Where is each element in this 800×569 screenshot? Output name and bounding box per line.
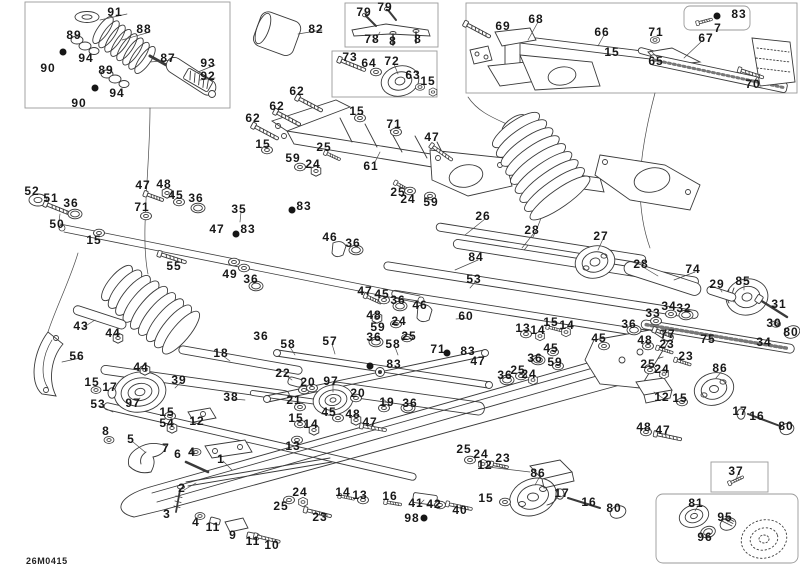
parts-diagram-canvas: 9188899490879392899490827979788873647263… (0, 0, 800, 569)
inset-bracket-78 (345, 3, 438, 47)
inset-gears (656, 494, 798, 563)
wheel-86-right (690, 368, 738, 411)
part-82-pad (251, 10, 303, 58)
center-spring (488, 107, 595, 226)
inset-bolt-37 (711, 462, 768, 492)
inset-front-shock (25, 2, 230, 108)
wheel-86-bottom (504, 471, 562, 522)
front-spring (97, 261, 205, 359)
drawing-number: 26M0415 (26, 556, 68, 566)
rails (121, 330, 668, 517)
front-arm-61 (272, 100, 700, 210)
bracket-56 (34, 332, 63, 396)
inset-rear-arm (462, 3, 797, 93)
diagram-line-art (0, 0, 800, 569)
inset-roller-72 (332, 51, 437, 100)
